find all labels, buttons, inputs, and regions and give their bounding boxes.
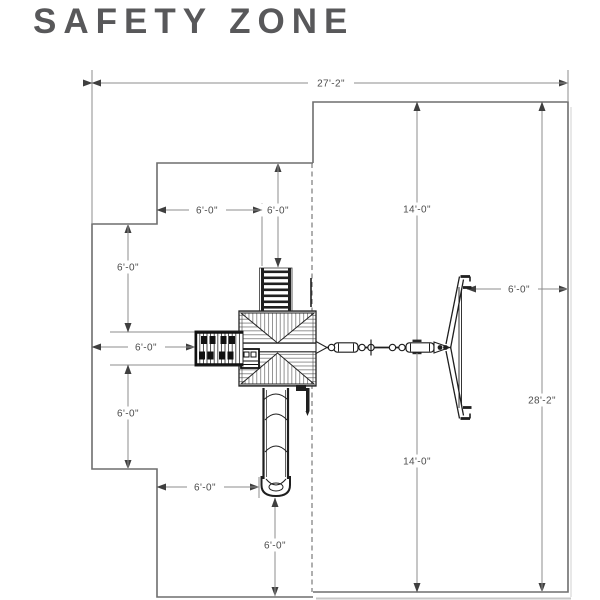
dim-overall-width: 27'-2" — [92, 77, 568, 90]
access-ladder — [260, 268, 293, 311]
safety-zone-page: SAFETY ZONE — [0, 0, 600, 600]
dim-slide-bottom-clearance-label: 6'-0" — [264, 541, 286, 552]
dim-monkey-bar-left-clearance-label: 6'-0" — [135, 343, 157, 354]
dim-slide-side-clearance-label: 6'-0" — [194, 483, 216, 494]
dim-climber-top-clearance: 6'-0" — [260, 163, 297, 267]
dim-tower-top-left-clearance-label: 6'-0" — [196, 206, 218, 217]
monkey-bars — [195, 331, 243, 366]
dim-beam-to-top: 14'-0" — [395, 102, 439, 354]
extension-lines — [92, 70, 568, 498]
dim-beam-to-bottom: 14'-0" — [395, 353, 439, 592]
dim-left-upper-clearance-label: 6'-0" — [117, 263, 139, 274]
dim-right-zone-height: 28'-2" — [519, 102, 565, 592]
dim-monkey-bar-left-clearance: 6'-0" — [92, 341, 195, 354]
swing-beam — [327, 340, 442, 356]
slide — [262, 388, 291, 496]
tower-step — [296, 385, 310, 416]
dim-overall-width-label: 27'-2" — [317, 79, 345, 90]
dim-beam-to-top-label: 14'-0" — [403, 205, 431, 216]
dim-swing-end-clearance-label: 6'-0" — [508, 285, 530, 296]
swing-a-frame — [434, 277, 472, 419]
dimensions: 27'-2" 28'-2" 14'-0" 14'-0" — [92, 77, 568, 597]
beam-bracket — [316, 342, 327, 354]
dim-slide-side-clearance: 6'-0" — [157, 481, 259, 494]
deck-hatch — [241, 349, 259, 368]
dim-tower-top-left-clearance: 6'-0" — [157, 204, 262, 217]
swing-seat-1 — [334, 343, 358, 352]
dim-left-lower-clearance-label: 6'-0" — [117, 409, 139, 420]
dim-swing-end-clearance: 6'-0" — [467, 283, 568, 296]
dim-climber-top-clearance-label: 6'-0" — [267, 206, 289, 217]
dim-slide-bottom-clearance: 6'-0" — [257, 498, 294, 596]
dim-left-lower-clearance: 6'-0" — [110, 365, 147, 469]
safety-zone-diagram: 27'-2" 28'-2" 14'-0" 14'-0" — [0, 0, 600, 600]
dim-beam-to-bottom-label: 14'-0" — [403, 457, 431, 468]
dim-right-zone-height-label: 28'-2" — [528, 396, 556, 407]
dim-left-upper-clearance: 6'-0" — [110, 224, 147, 332]
